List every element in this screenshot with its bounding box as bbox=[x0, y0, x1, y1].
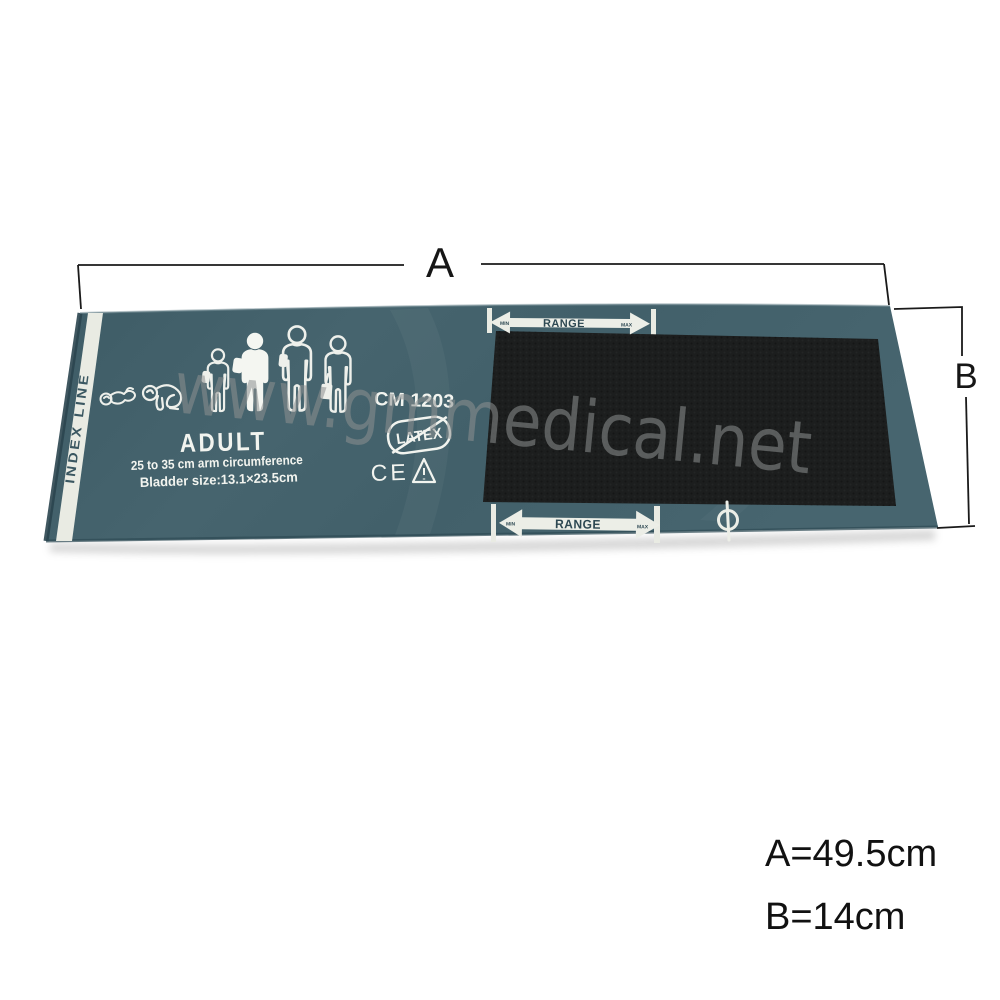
cuff-photo-canvas: INDEX LINE bbox=[0, 0, 1000, 1000]
dim-b-value: B=14cm bbox=[765, 896, 905, 938]
dim-a-letter: A bbox=[426, 239, 454, 286]
dim-b-line-bottom bbox=[966, 397, 969, 524]
range-bottom-min: MIN bbox=[506, 521, 516, 527]
dim-a-value: A=49.5cm bbox=[765, 833, 937, 875]
dim-b-bracket-top bbox=[894, 307, 962, 356]
range-bottom-max: MAX bbox=[637, 524, 649, 530]
dim-b-tick-bottom bbox=[937, 526, 975, 528]
dim-b-letter: B bbox=[954, 357, 977, 396]
range-top-label: RANGE bbox=[543, 318, 585, 330]
dim-a-tick-right bbox=[884, 264, 889, 305]
product-photo: INDEX LINE bbox=[0, 0, 1000, 1000]
range-top-max: MAX bbox=[621, 322, 633, 328]
range-top-min: MIN bbox=[500, 321, 510, 327]
ce-mark: CE bbox=[370, 459, 409, 486]
dim-a-tick-left bbox=[78, 265, 81, 309]
range-bottom-label: RANGE bbox=[555, 517, 601, 532]
